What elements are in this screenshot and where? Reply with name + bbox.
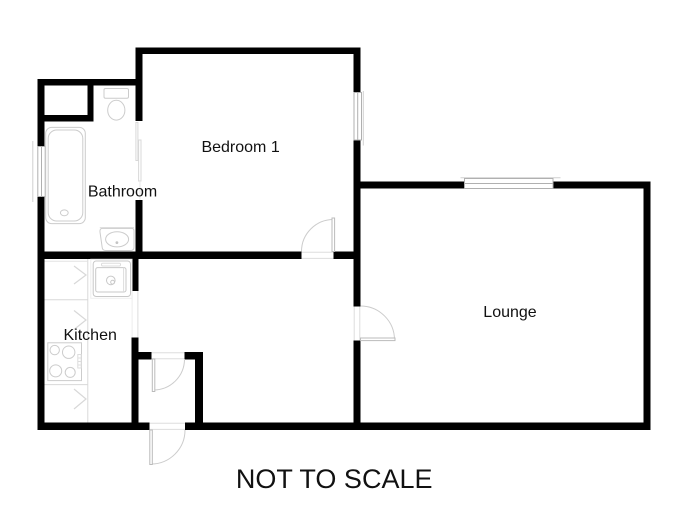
svg-text:Bathroom: Bathroom [88,184,157,201]
svg-text:Kitchen: Kitchen [64,327,117,344]
svg-text:NOT TO SCALE: NOT TO SCALE [236,464,433,494]
svg-text:Bedroom 1: Bedroom 1 [201,139,279,156]
svg-text:Lounge: Lounge [483,304,536,321]
